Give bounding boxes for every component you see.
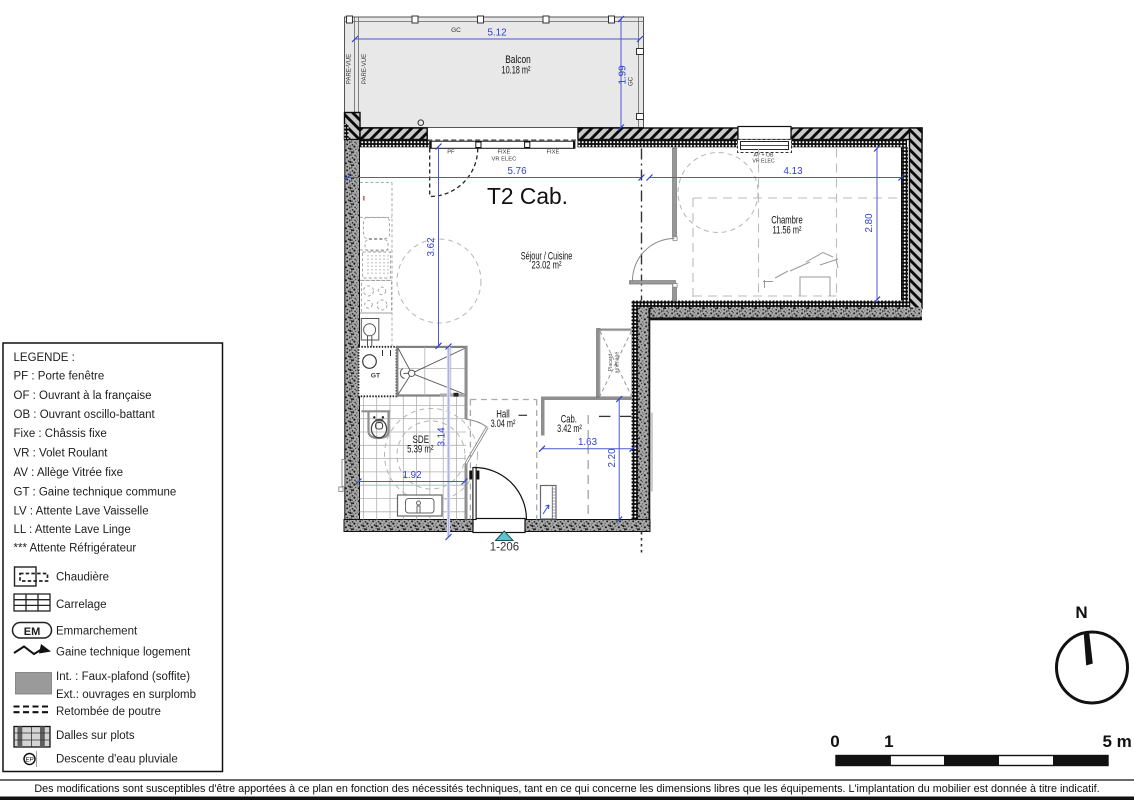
svg-text:2.20: 2.20	[607, 448, 618, 468]
svg-text:3.42 m²: 3.42 m²	[557, 423, 582, 435]
svg-text:Descente d'eau pluviale: Descente d'eau pluviale	[56, 754, 178, 766]
svg-text:10.18 m²: 10.18 m²	[502, 65, 531, 77]
svg-text:Retombée de poutre: Retombée de poutre	[56, 706, 161, 718]
svg-text:GC: GC	[629, 76, 635, 86]
svg-text:EP: EP	[25, 758, 33, 764]
svg-text:1-206: 1-206	[490, 542, 519, 554]
svg-text:VR ELEC: VR ELEC	[491, 157, 516, 163]
svg-text:5.76: 5.76	[507, 166, 527, 177]
svg-text:EM: EM	[24, 626, 41, 638]
svg-text:GT: GT	[371, 373, 381, 380]
svg-text:Carrelage: Carrelage	[56, 599, 107, 611]
svg-text:1: 1	[884, 732, 893, 751]
svg-text:FIXE: FIXE	[546, 150, 559, 156]
svg-text:2.80: 2.80	[864, 213, 875, 233]
svg-text:PF: PF	[447, 150, 455, 156]
svg-text:1.63: 1.63	[578, 437, 598, 448]
svg-text:5.39 m²: 5.39 m²	[407, 444, 434, 456]
svg-text:3.14: 3.14	[437, 427, 448, 447]
svg-text:LV : Attente Lave Vaisselle: LV : Attente Lave Vaisselle	[14, 506, 149, 518]
svg-text:4.13: 4.13	[783, 166, 803, 177]
svg-text:OB : Ouvrant oscillo-battant: OB : Ouvrant oscillo-battant	[14, 409, 156, 421]
svg-text:Ext.: ouvrages en surplomb: Ext.: ouvrages en surplomb	[56, 689, 196, 701]
svg-text:Fixe : Châssis fixe: Fixe : Châssis fixe	[14, 428, 107, 440]
svg-text:5 m: 5 m	[1103, 732, 1132, 751]
svg-text:PARE-VUE: PARE-VUE	[362, 54, 368, 84]
svg-text:PF : Porte fenêtre: PF : Porte fenêtre	[14, 371, 105, 383]
svg-text:Chaudière: Chaudière	[56, 572, 109, 584]
svg-text:0: 0	[830, 732, 839, 751]
svg-text:11.56 m²: 11.56 m²	[773, 225, 802, 237]
svg-text:N: N	[1075, 603, 1087, 622]
svg-text:Gaine technique logement: Gaine technique logement	[56, 647, 191, 659]
svg-text:Int. : Faux-plafond (soffite): Int. : Faux-plafond (soffite)	[56, 671, 190, 683]
svg-text:aménagé: aménagé	[615, 352, 621, 374]
svg-text:LEGENDE :: LEGENDE :	[14, 352, 75, 364]
svg-text:VR : Volet Roulant: VR : Volet Roulant	[14, 448, 109, 460]
svg-text:Emmarchement: Emmarchement	[56, 626, 138, 638]
svg-text:*** Attente Réfrigérateur: *** Attente Réfrigérateur	[14, 542, 137, 554]
svg-text:LL : Attente Lave Linge: LL : Attente Lave Linge	[14, 524, 131, 536]
svg-text:AV : Allège Vitrée fixe: AV : Allège Vitrée fixe	[14, 467, 124, 479]
svg-text:3.04 m²: 3.04 m²	[491, 418, 516, 430]
svg-text:Placard: Placard	[608, 354, 614, 372]
svg-text:5.12: 5.12	[487, 28, 506, 39]
svg-text:23.02 m²: 23.02 m²	[532, 260, 562, 272]
svg-text:VR ELEC: VR ELEC	[752, 159, 774, 165]
svg-text:OF : Ouvrant à la française: OF : Ouvrant à la française	[14, 390, 152, 402]
svg-text:PARE-VUE: PARE-VUE	[347, 54, 353, 84]
svg-text:FIXE: FIXE	[497, 150, 510, 156]
svg-text:GC: GC	[451, 27, 461, 34]
svg-text:1.99: 1.99	[618, 65, 629, 84]
svg-text:Dalles sur plots: Dalles sur plots	[56, 730, 135, 742]
svg-text:Des modifications sont suscept: Des modifications sont susceptibles d'êt…	[34, 783, 1099, 795]
svg-text:GT : Gaine technique commune: GT : Gaine technique commune	[14, 487, 177, 499]
svg-text:T2 Cab.: T2 Cab.	[487, 183, 568, 209]
svg-text:3.62: 3.62	[426, 237, 437, 256]
svg-text:1.92: 1.92	[402, 470, 421, 481]
